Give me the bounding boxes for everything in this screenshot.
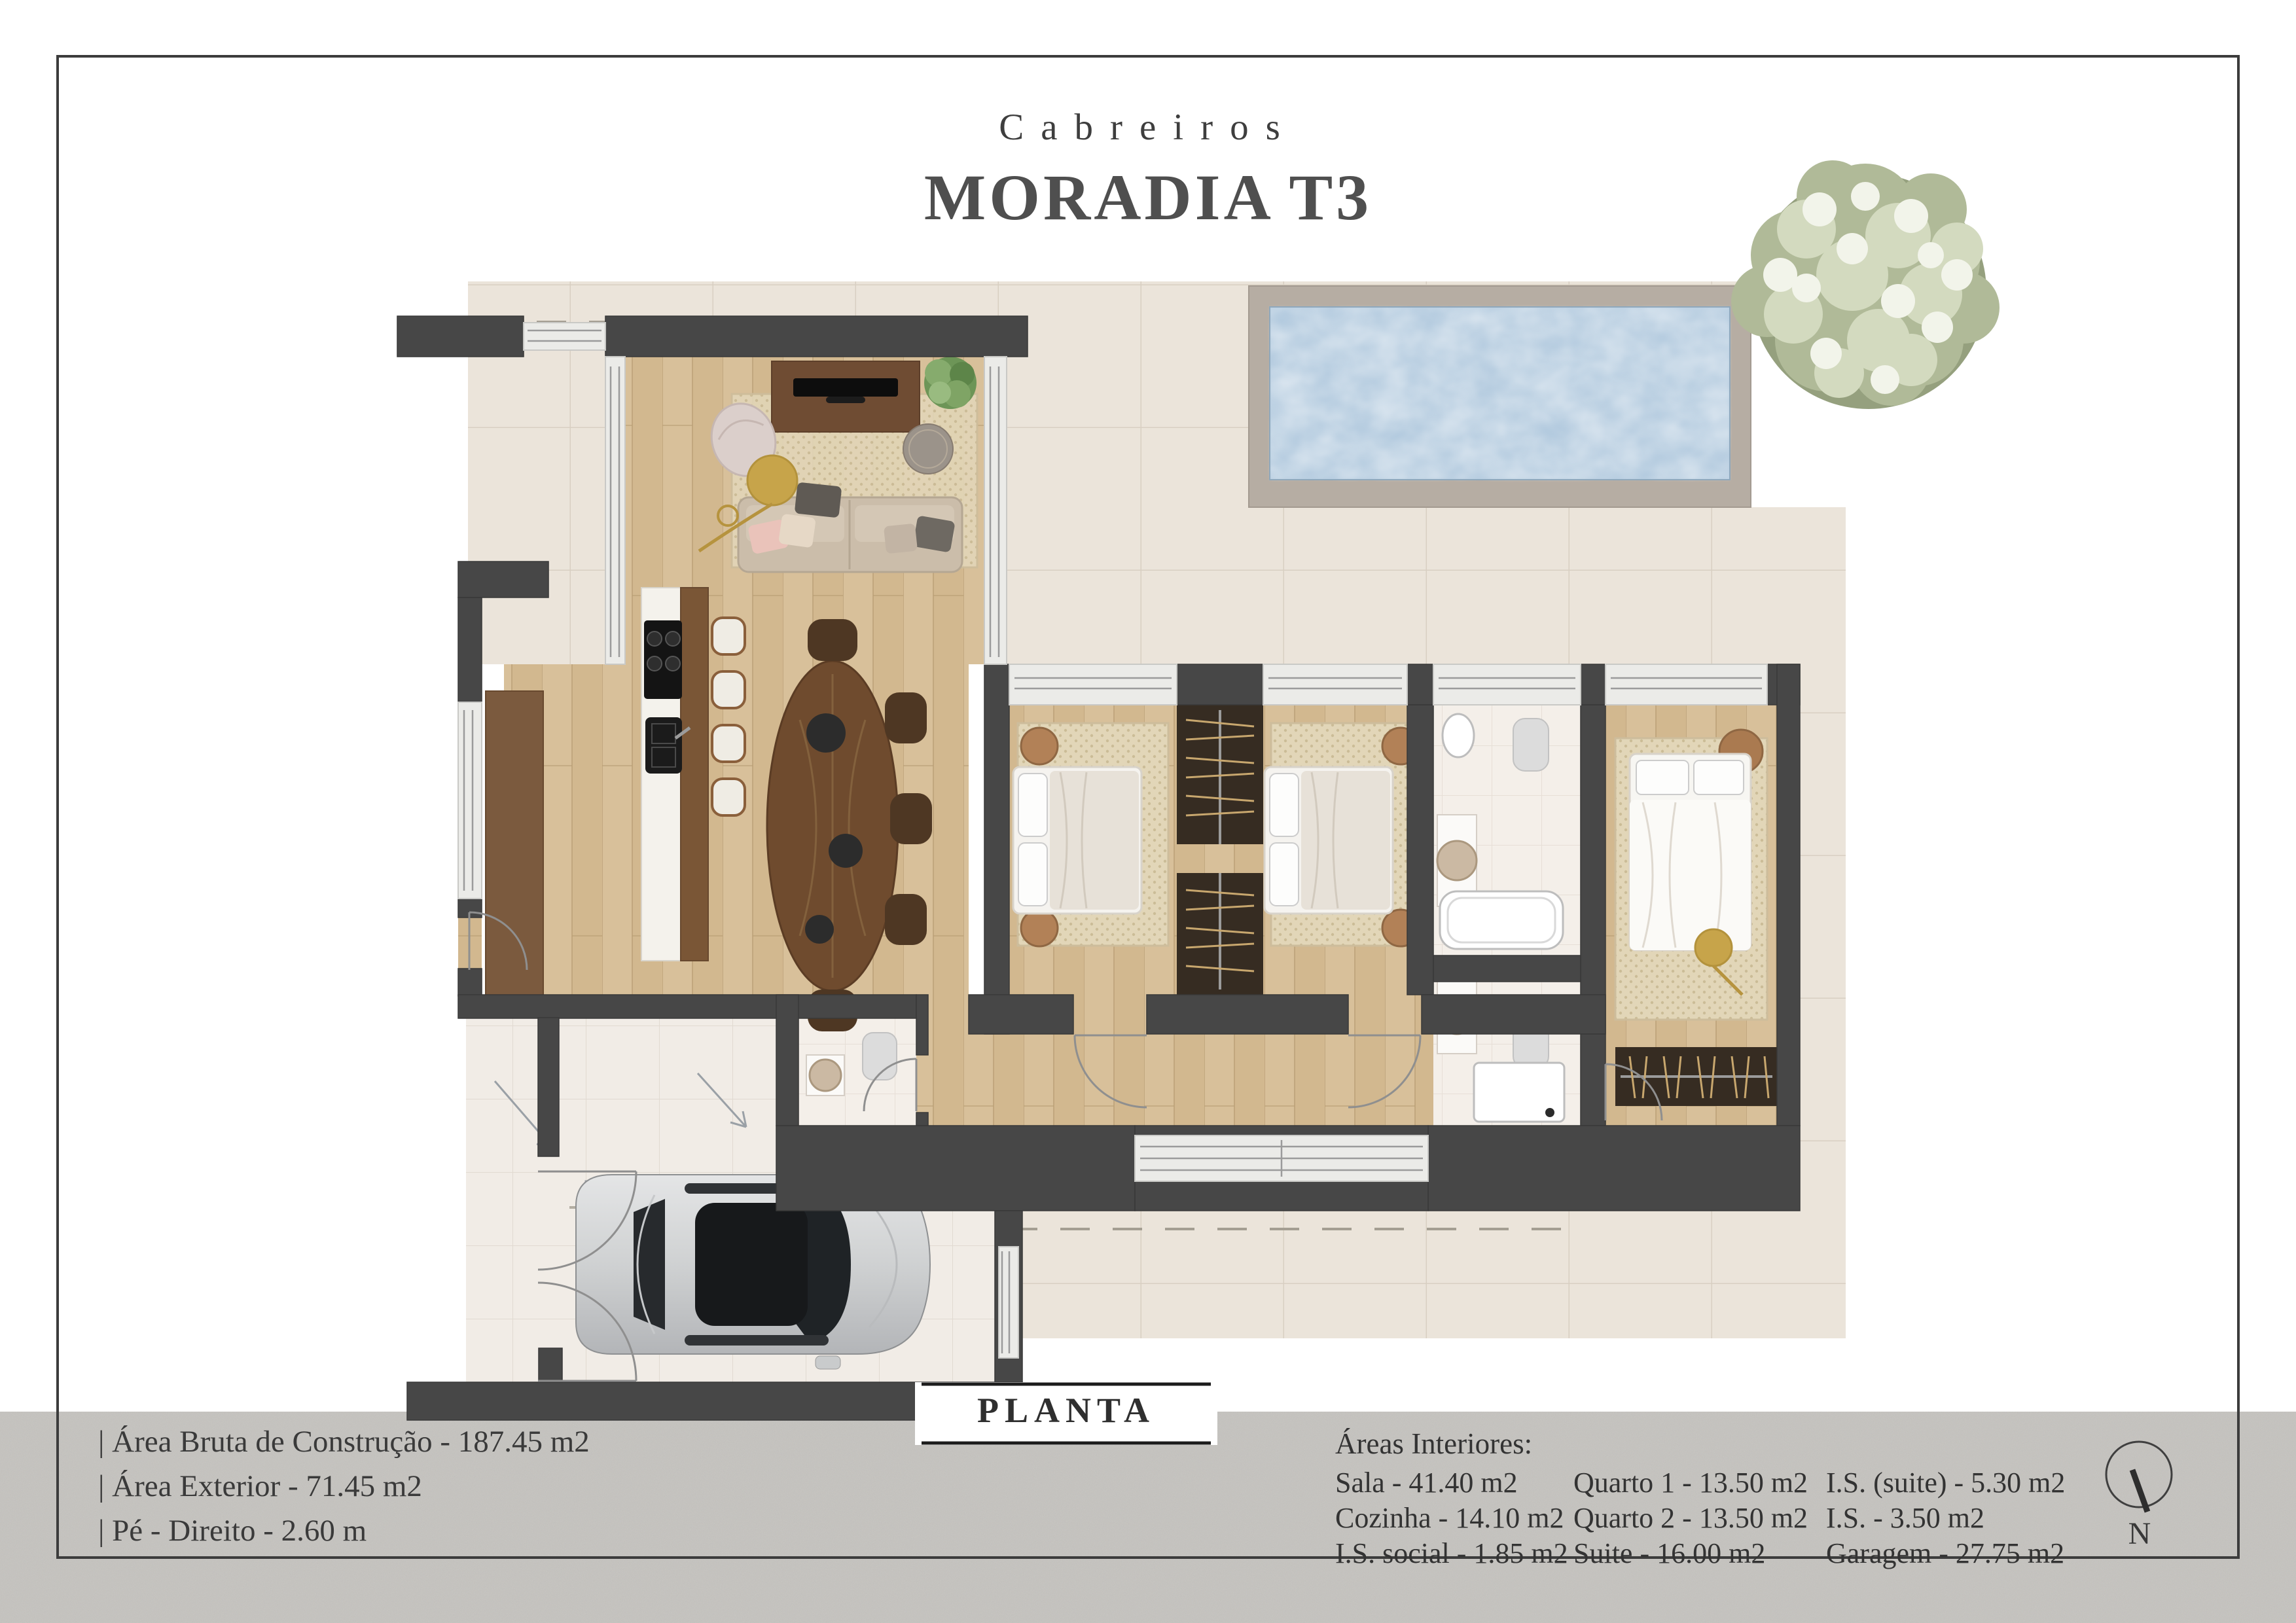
- window-suite: [1605, 664, 1767, 705]
- sofa-pillow-dark: [795, 482, 842, 518]
- areas-heading: Áreas Interiores:: [1335, 1427, 1532, 1461]
- bidet-icon: [1443, 714, 1474, 757]
- area-is-social: I.S. social - 1.85 m2: [1335, 1537, 1568, 1570]
- spec-area-bruta: | Área Bruta de Construção - 187.45 m2: [98, 1424, 590, 1459]
- bed-quarto-1: [1013, 767, 1141, 914]
- area-sala: Sala - 41.40 m2: [1335, 1466, 1518, 1499]
- dining-chair: [885, 894, 927, 945]
- toilet-icon: [1513, 719, 1549, 771]
- area-is: I.S. - 3.50 m2: [1826, 1501, 1984, 1535]
- page-title: MORADIA T3: [0, 160, 2296, 235]
- window-bathroom: [1433, 664, 1581, 705]
- kitchen-counter: [486, 691, 543, 1001]
- window-bedroom-1: [1009, 664, 1177, 705]
- spec-area-exterior: | Área Exterior - 71.45 m2: [98, 1469, 422, 1504]
- bed-suite: [1630, 754, 1751, 950]
- window-top-left: [524, 323, 605, 350]
- dining-chair: [885, 692, 927, 743]
- window-bedroom-2: [1263, 664, 1407, 705]
- tv: [793, 378, 898, 397]
- plant-icon: [924, 357, 977, 409]
- dining-chair: [808, 619, 857, 661]
- window-living-east: [984, 357, 1007, 664]
- wardrobe-1: [1177, 705, 1263, 995]
- page: Cabreiros MORADIA T3 PLANTA | Área Bruta…: [0, 0, 2296, 1623]
- sink-icon: [645, 717, 682, 774]
- window-living-west: [605, 357, 625, 664]
- suite: [1615, 730, 1777, 1106]
- area-is-suite: I.S. (suite) - 5.30 m2: [1826, 1466, 2065, 1499]
- bedroom-2: [1265, 723, 1423, 946]
- pool: [1249, 286, 1751, 507]
- area-quarto-2: Quarto 2 - 13.50 m2: [1573, 1501, 1808, 1535]
- area-garagem: Garagem - 27.75 m2: [1826, 1537, 2064, 1570]
- brand-name: Cabreiros: [0, 106, 2296, 149]
- compass-north-label: N: [2118, 1516, 2161, 1552]
- window-kitchen-west: [458, 702, 482, 899]
- wall-detached-top-left: [397, 316, 524, 357]
- washbasin-icon: [810, 1060, 841, 1091]
- bed-quarto-2: [1265, 767, 1393, 914]
- area-quarto-1: Quarto 1 - 13.50 m2: [1573, 1466, 1808, 1499]
- plan-label: PLANTA: [915, 1390, 1217, 1431]
- floor-plan-svg: [0, 0, 2296, 1623]
- area-suite: Suite - 16.00 m2: [1573, 1537, 1765, 1570]
- coffee-table: [903, 424, 953, 474]
- bathtub-icon: [1440, 891, 1563, 949]
- side-table: [1021, 910, 1058, 946]
- spec-pe-direito: | Pé - Direito - 2.60 m: [98, 1513, 367, 1548]
- bedroom-1: [1013, 723, 1168, 946]
- shower-icon: [1474, 1063, 1564, 1122]
- area-cozinha: Cozinha - 14.10 m2: [1335, 1501, 1564, 1535]
- washbasin-icon: [1437, 841, 1477, 880]
- side-table: [1021, 728, 1058, 764]
- dining-chair: [890, 793, 932, 844]
